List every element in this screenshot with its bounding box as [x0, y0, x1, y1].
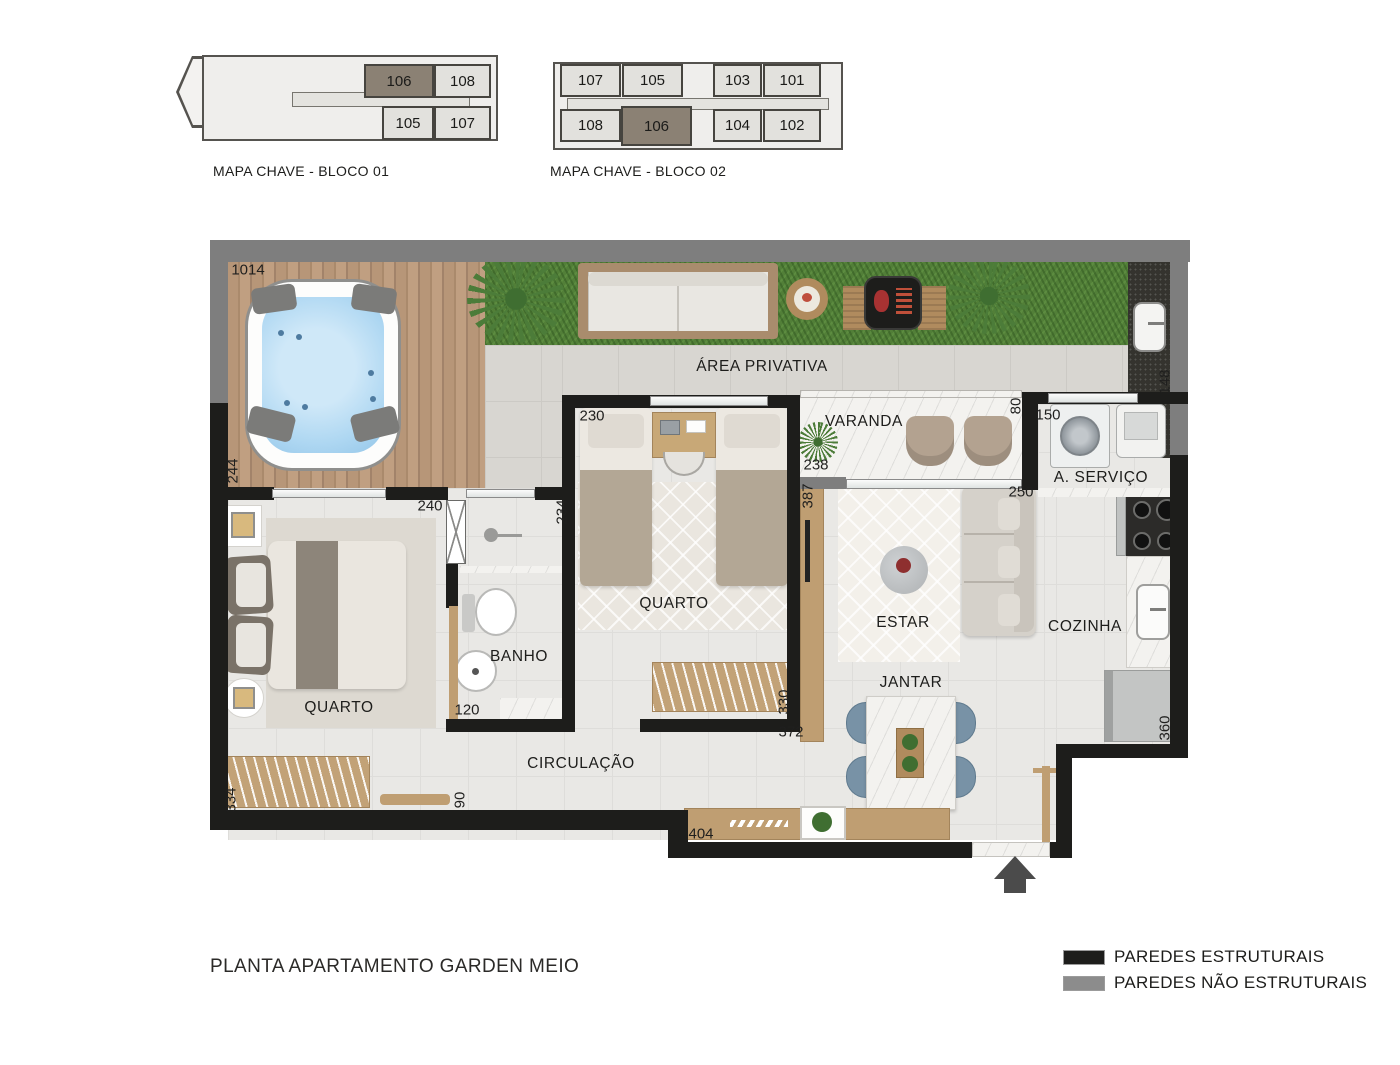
garden-sink: [1133, 302, 1166, 352]
grill-meat: [874, 290, 889, 312]
unit-cell-104: 104: [713, 109, 762, 142]
legend-swatch: [1063, 976, 1105, 991]
wall-segment: [210, 403, 228, 830]
flower-centerpiece: [896, 558, 911, 573]
bed-pillow: [588, 414, 644, 448]
table-lamp: [233, 687, 255, 709]
tank-basin: [1124, 412, 1158, 440]
unit-cell-106: 106: [621, 106, 692, 146]
unit-cell-107: 107: [434, 106, 491, 140]
toilet-tank: [462, 594, 475, 632]
wall-segment: [1170, 262, 1188, 458]
burner: [1133, 532, 1151, 550]
window: [1048, 393, 1138, 403]
legend-label: PAREDES NÃO ESTRUTURAIS: [1114, 973, 1367, 993]
refrigerator: [1104, 670, 1180, 742]
planter-greens: [902, 756, 918, 772]
wall-segment: [210, 262, 228, 405]
window: [650, 396, 768, 406]
food-item: [802, 293, 812, 302]
wall-segment: [210, 240, 1190, 262]
bed-pillow: [724, 414, 780, 448]
door-leaf: [449, 606, 458, 732]
unit-cell-108: 108: [434, 64, 491, 98]
sofa-seam: [964, 581, 1014, 583]
page-title: PLANTA APARTAMENTO GARDEN MEIO: [210, 956, 579, 978]
unit-cell-103: 103: [713, 64, 762, 97]
unit-cell-107: 107: [560, 64, 621, 97]
window: [272, 489, 386, 498]
sofa-pillow: [998, 498, 1020, 530]
shower-arm: [496, 534, 522, 537]
unit-cell-106: 106: [364, 64, 434, 98]
kitchen-faucet: [1150, 608, 1166, 611]
notebook: [686, 420, 706, 433]
unit-cell-105: 105: [622, 64, 683, 97]
coat-rack: [1042, 766, 1050, 846]
floor-plan-page: 106108105107 MAPA CHAVE - BLOCO 01 10710…: [0, 0, 1400, 1065]
sofa-pillow: [998, 546, 1020, 578]
bathroom-counter: [460, 566, 562, 573]
washer-drum: [1060, 416, 1100, 456]
bed-pillow: [236, 563, 266, 607]
sink-drain: [472, 668, 479, 675]
wall-segment: [446, 719, 562, 732]
garden-sink-faucet: [1148, 322, 1164, 325]
wardrobe-rack: [224, 756, 370, 808]
entry-arrow-stem: [1004, 879, 1026, 893]
bed-pillow: [236, 623, 266, 667]
varanda-plant: [798, 422, 838, 462]
burner: [1133, 501, 1151, 519]
wall-segment: [228, 487, 274, 500]
bbq-side-table: [918, 286, 946, 330]
varanda-chair: [906, 416, 954, 466]
kitchen-sink: [1136, 584, 1170, 640]
window: [466, 489, 535, 498]
bed-blanket: [716, 470, 788, 586]
varanda-chair: [964, 416, 1012, 466]
plant: [812, 812, 832, 832]
wall-segment: [787, 395, 800, 732]
bench: [380, 794, 450, 805]
sofa-seam: [964, 533, 1014, 535]
wall-segment: [210, 810, 688, 830]
key-map-label: MAPA CHAVE - BLOCO 01: [213, 163, 389, 179]
wall-segment: [386, 487, 448, 500]
sofa-pillow: [998, 594, 1020, 626]
wall-segment: [1056, 744, 1072, 858]
planter-greens: [902, 734, 918, 750]
bathroom-door: [446, 500, 466, 564]
wall-legend: PAREDES ESTRUTURAISPAREDES NÃO ESTRUTURA…: [1063, 946, 1367, 998]
bed-blanket: [580, 470, 652, 586]
sliding-glass-door: [846, 479, 1022, 489]
legend-row: PAREDES NÃO ESTRUTURAIS: [1063, 972, 1367, 994]
legend-row: PAREDES ESTRUTURAIS: [1063, 946, 1367, 968]
entry-arrow-icon: [994, 856, 1036, 879]
jacuzzi-jets: [278, 330, 284, 336]
wall-segment: [800, 477, 846, 489]
unit-cell-108: 108: [560, 109, 621, 142]
unit-cell-102: 102: [763, 109, 821, 142]
wall-segment: [1170, 455, 1188, 758]
wall-segment: [446, 564, 458, 608]
key-map-label: MAPA CHAVE - BLOCO 02: [550, 163, 726, 179]
varanda-parapet: [800, 390, 1022, 398]
toilet: [475, 588, 517, 636]
tv: [805, 520, 810, 582]
laptop: [660, 420, 680, 435]
legend-label: PAREDES ESTRUTURAIS: [1114, 947, 1324, 967]
table-lamp: [231, 512, 255, 538]
palm-plant: [467, 255, 565, 343]
entry-threshold: [972, 842, 1050, 857]
palm-plant: [948, 258, 1030, 334]
shower-floor: [500, 698, 562, 719]
wall-segment: [562, 408, 575, 732]
grill-ribs: [896, 288, 912, 314]
concrete-path: [485, 345, 562, 488]
sofa-back-roll: [588, 272, 768, 286]
wall-segment: [640, 719, 787, 732]
stove-side-panel: [1116, 494, 1126, 556]
legend-swatch: [1063, 950, 1105, 965]
bbq-grill: [864, 276, 922, 330]
tv-sideboard: [800, 486, 824, 742]
wall-segment: [668, 842, 972, 858]
wall-segment: [1022, 392, 1038, 490]
wall-segment: [1056, 744, 1188, 758]
service-threshold: [1038, 488, 1172, 497]
unit-cell-105: 105: [382, 106, 434, 140]
wardrobe-rack: [652, 662, 788, 712]
decor-object: [730, 820, 788, 827]
bed-throw: [296, 541, 338, 689]
unit-cell-101: 101: [763, 64, 821, 97]
